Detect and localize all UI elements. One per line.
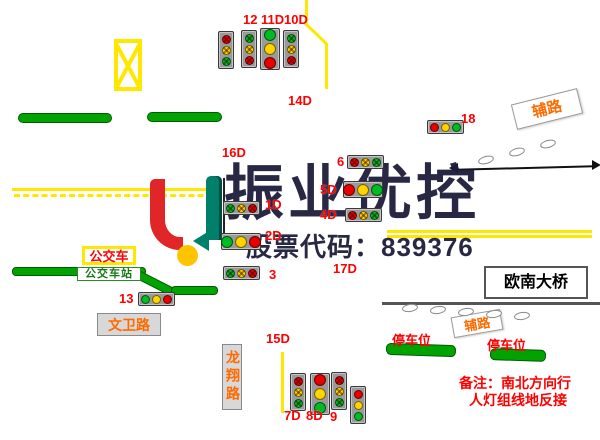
- stop-bar-east: [147, 112, 222, 122]
- signal-label-4d: 4D: [320, 208, 337, 221]
- green-bulb: [371, 184, 383, 196]
- green-bulb: [226, 204, 235, 213]
- yellow-bulb: [237, 269, 246, 278]
- yellow-bulb: [354, 401, 363, 410]
- red-bulb: [348, 211, 357, 220]
- green-bulb: [222, 57, 231, 66]
- sign-longxiang-road: 龙翔路: [222, 344, 242, 410]
- green-bulb: [370, 211, 379, 220]
- red-bulb: [222, 35, 231, 44]
- sign-fulu-top: 辅路: [511, 88, 583, 130]
- arrowhead-right: [592, 160, 600, 170]
- yellow-bulb: [357, 184, 369, 196]
- signal-label-18: 18: [461, 112, 475, 125]
- yellow-bulb: [361, 158, 370, 167]
- note-line-1: 备注：南北方向行: [459, 375, 571, 392]
- green-bulb: [372, 158, 381, 167]
- yellow-bulb: [314, 388, 326, 400]
- sign-ounan-bridge: 欧南大桥: [484, 266, 588, 299]
- bus-lane-segment: [171, 286, 218, 295]
- green-bulb: [264, 29, 276, 41]
- traffic-light-aux-south[interactable]: [350, 386, 366, 424]
- traffic-light-north-a[interactable]: [218, 31, 234, 69]
- lane-line-15d: [281, 352, 284, 413]
- signal-label-13: 13: [119, 292, 133, 305]
- red-bulb: [163, 295, 172, 304]
- lane-dash-marking: [477, 154, 495, 166]
- yellow-bulb: [264, 43, 276, 55]
- red-bulb: [335, 376, 344, 385]
- sign-wenwei-road: 文卫路: [97, 313, 161, 336]
- sign-parking-left: 停车位: [392, 330, 431, 349]
- lane-dash-marking: [508, 146, 526, 158]
- red-bulb: [343, 184, 355, 196]
- signal-label-8d: 8D: [306, 409, 323, 422]
- green-bulb: [221, 236, 233, 248]
- signal-label-16d: 16D: [222, 146, 246, 159]
- red-bulb: [248, 269, 257, 278]
- red-bulb: [430, 123, 439, 132]
- traffic-light-6[interactable]: [347, 155, 384, 169]
- sign-bus: 公交车: [82, 246, 136, 265]
- red-bulb: [245, 56, 254, 65]
- green-bulb: [141, 295, 150, 304]
- green-bulb: [226, 269, 235, 278]
- lane-dash-marking: [539, 138, 557, 150]
- green-bulb: [245, 34, 254, 43]
- yellow-bulb: [245, 45, 254, 54]
- signal-label-12: 12: [243, 13, 257, 26]
- double-yellow-line-solid: [12, 188, 222, 191]
- yellow-bulb: [235, 236, 247, 248]
- green-bulb: [452, 123, 461, 132]
- traffic-light-7d[interactable]: [290, 373, 306, 411]
- yellow-bulb: [359, 211, 368, 220]
- traffic-light-13[interactable]: [138, 292, 175, 306]
- traffic-light-3[interactable]: [223, 266, 260, 280]
- yellow-bulb: [222, 46, 231, 55]
- yellow-bulb: [335, 387, 344, 396]
- red-bulb: [264, 57, 276, 69]
- signal-label-11d: 11D: [261, 13, 284, 26]
- traffic-light-2d[interactable]: [221, 233, 261, 250]
- signal-label-7d: 7D: [284, 409, 301, 422]
- signal-label-14d: 14D: [288, 94, 312, 107]
- note-line-2: 人灯组线地反接: [469, 392, 567, 409]
- signal-label-10d: 10D: [284, 13, 308, 26]
- yellow-bulb: [441, 123, 450, 132]
- traffic-light-9[interactable]: [331, 372, 347, 410]
- sign-parking-right: 停车位: [487, 335, 526, 354]
- lane-line-segment: [325, 43, 328, 89]
- red-bulb: [249, 236, 261, 248]
- signal-label-6: 6: [337, 155, 344, 168]
- sign-bus-station: 公交车站: [77, 267, 141, 281]
- red-bulb: [248, 204, 257, 213]
- traffic-light-1d[interactable]: [223, 201, 260, 215]
- signal-label-17d: 17D: [333, 262, 357, 275]
- double-yellow-line-dashed: [14, 194, 222, 197]
- intersection-schematic: 振业优控 股票代码：839376 辅路 欧南大桥 辅路 文卫路 龙翔路 公交车 …: [0, 0, 600, 440]
- green-bulb: [335, 398, 344, 407]
- red-bulb: [294, 377, 303, 386]
- red-bulb: [350, 158, 359, 167]
- yellow-bulb: [294, 388, 303, 397]
- red-bulb: [354, 390, 363, 399]
- yellow-bulb: [237, 204, 246, 213]
- yellow-bulb: [287, 45, 296, 54]
- signal-label-9: 9: [330, 410, 337, 423]
- lane-dash-marking: [514, 311, 531, 321]
- green-bulb: [294, 399, 303, 408]
- signal-label-1d: 1D: [265, 198, 282, 211]
- traffic-light-18[interactable]: [427, 120, 464, 134]
- green-bulb: [287, 34, 296, 43]
- signal-label-5d: 5D: [320, 183, 337, 196]
- logo-red-stroke: [150, 179, 183, 250]
- red-bulb: [287, 56, 296, 65]
- traffic-light-north-12[interactable]: [241, 30, 257, 68]
- lane-dash-marking: [402, 303, 419, 313]
- traffic-light-north-11d[interactable]: [260, 28, 280, 70]
- red-bulb: [314, 374, 326, 386]
- traffic-light-north-10d[interactable]: [283, 30, 299, 68]
- logo-teal-stroke: [206, 176, 222, 240]
- green-bulb: [354, 412, 363, 421]
- signal-label-15d: 15D: [266, 332, 290, 345]
- signal-label-2d: 2D: [265, 229, 282, 242]
- lane-dash-marking: [430, 305, 447, 315]
- traffic-light-4d[interactable]: [345, 208, 382, 222]
- signal-label-3: 3: [269, 268, 276, 281]
- traffic-light-5d[interactable]: [343, 181, 383, 198]
- stop-bar-west: [18, 113, 112, 123]
- yellow-bulb: [152, 295, 161, 304]
- crossing-box-marking: [114, 39, 142, 91]
